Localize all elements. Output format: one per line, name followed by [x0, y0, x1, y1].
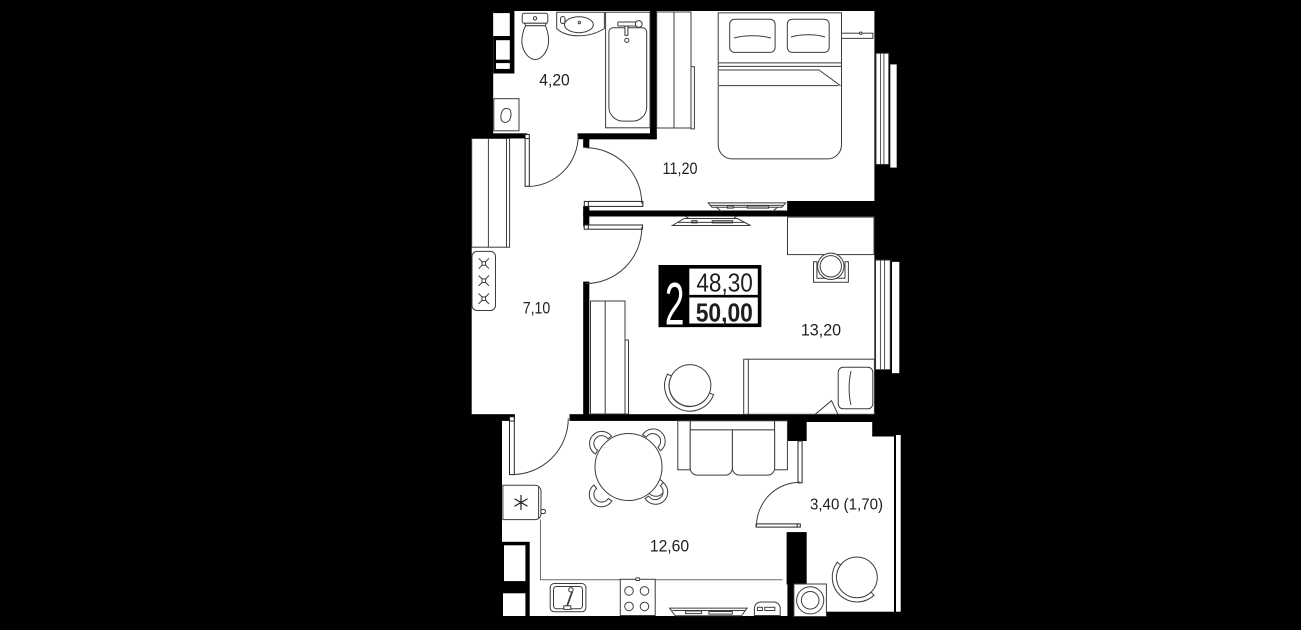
svg-text:2: 2 [665, 270, 685, 337]
svg-text:3,40 (1,70): 3,40 (1,70) [810, 497, 883, 514]
svg-text:4,20: 4,20 [539, 72, 570, 90]
svg-text:7,10: 7,10 [523, 299, 551, 317]
svg-text:11,20: 11,20 [663, 160, 698, 178]
svg-text:48,30: 48,30 [696, 269, 753, 297]
svg-text:13,20: 13,20 [801, 322, 841, 340]
svg-text:12,60: 12,60 [650, 538, 689, 556]
svg-text:50,00: 50,00 [696, 300, 753, 328]
